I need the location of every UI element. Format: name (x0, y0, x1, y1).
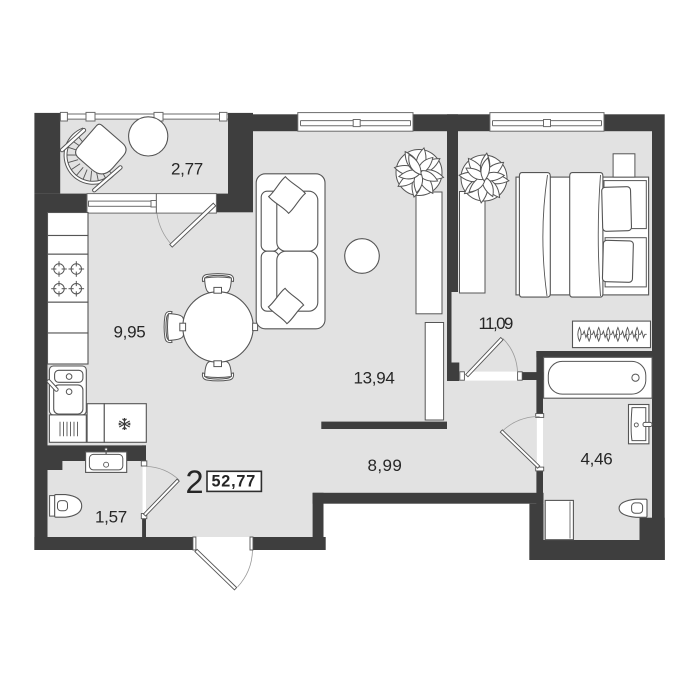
svg-text:8,99: 8,99 (368, 456, 403, 475)
svg-text:1,57: 1,57 (95, 508, 127, 527)
svg-text:2,77: 2,77 (171, 160, 203, 179)
svg-text:52,77: 52,77 (212, 473, 257, 491)
svg-text:11,09: 11,09 (479, 314, 513, 333)
svg-text:4,46: 4,46 (581, 450, 613, 469)
svg-text:2: 2 (186, 464, 204, 500)
svg-text:13,94: 13,94 (354, 369, 395, 388)
svg-text:9,95: 9,95 (114, 323, 146, 342)
